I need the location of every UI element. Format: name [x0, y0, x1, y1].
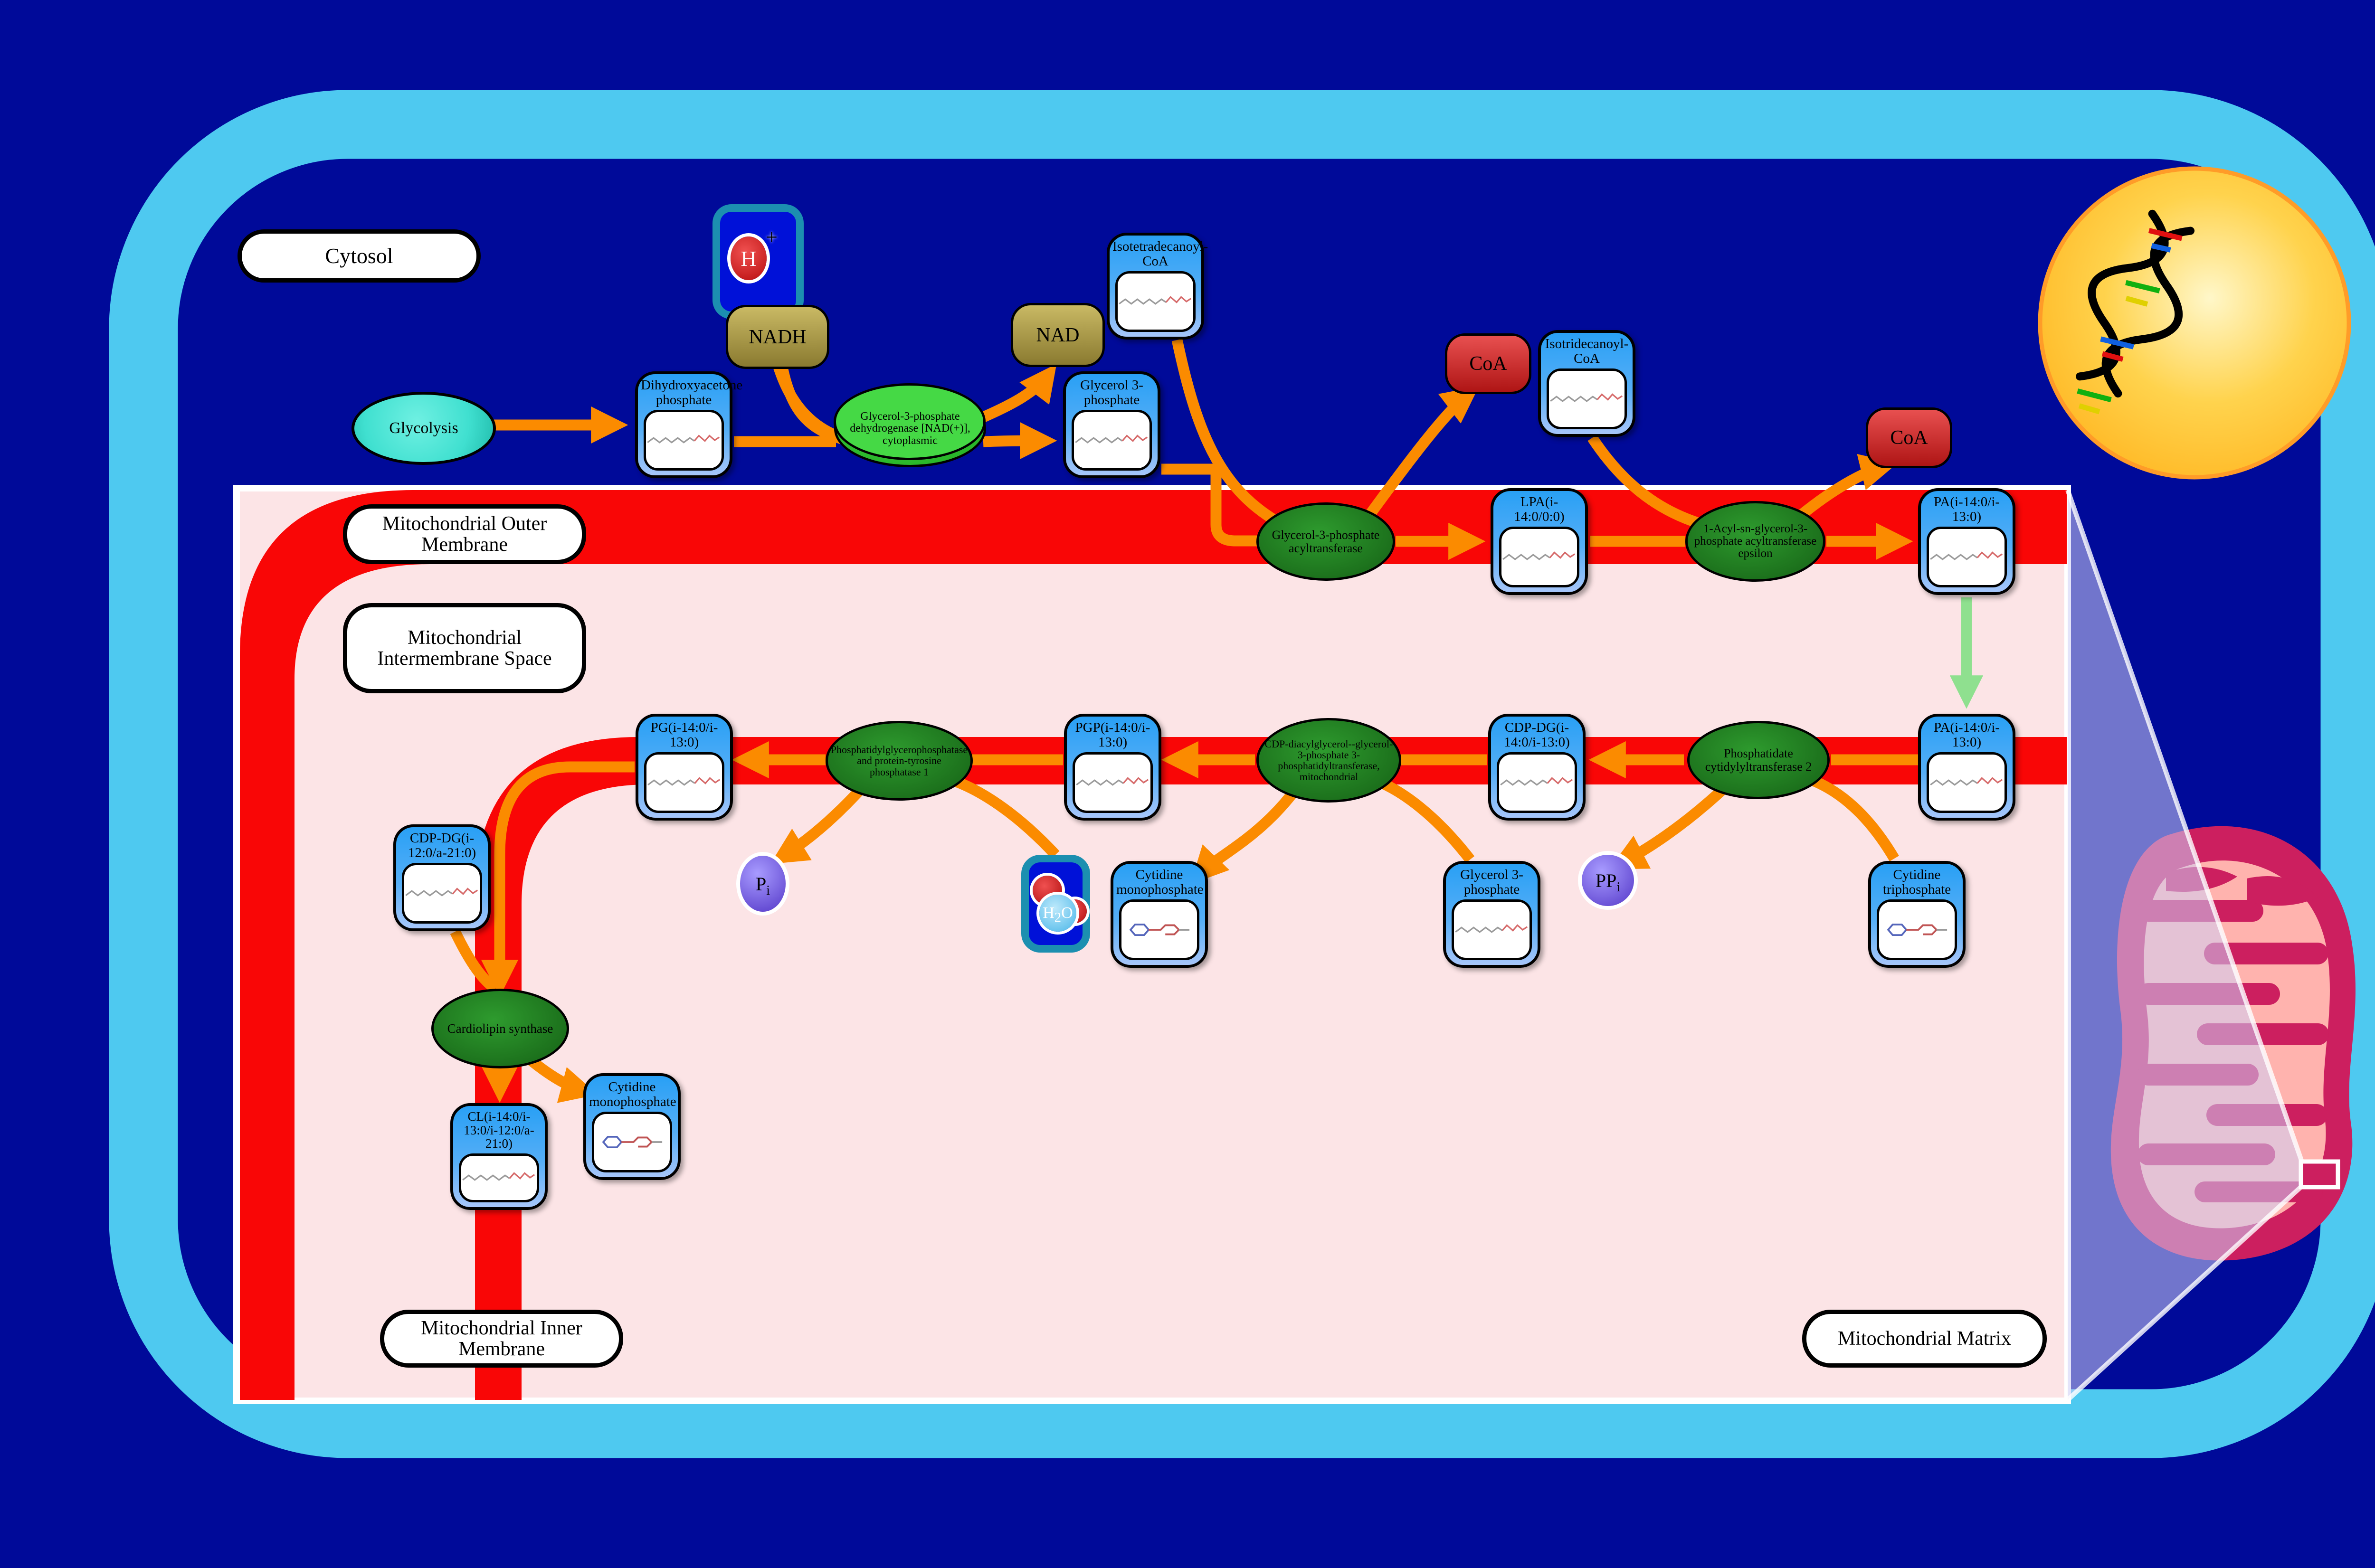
molecule-structure-icon	[1497, 752, 1577, 813]
metabolite-node-cmp-bottom[interactable]: Cytidine monophosphate	[583, 1073, 681, 1180]
compartment-label-inner-membrane: Mitochondrial Inner Membrane	[380, 1310, 623, 1368]
pathway-diagram-canvas: Cytosol Mitochondrial Outer Membrane Mit…	[0, 0, 2375, 1568]
metabolite-node-pa-outer[interactable]: PA(i-14:0/i-13:0)	[1918, 488, 2015, 595]
nucleus-illustration	[2040, 169, 2349, 477]
metabolite-node-cdp-dg[interactable]: CDP-DG(i-14:0/i-13:0)	[1488, 714, 1586, 821]
molecule-structure-icon	[1115, 271, 1196, 332]
compartment-label-outer-membrane: Mitochondrial Outer Membrane	[343, 504, 586, 564]
molecule-structure-icon	[1072, 410, 1152, 471]
h-plus-entity[interactable]: H +	[712, 204, 804, 319]
molecule-structure-icon	[1452, 899, 1532, 960]
molecule-structure-icon	[1499, 527, 1579, 587]
coa-entity-1[interactable]: CoA	[1445, 333, 1531, 394]
metabolite-node-dhap[interactable]: Dihydroxyacetone phosphate	[635, 371, 732, 478]
metabolite-node-isotridecanoyl-coa[interactable]: Isotridecanoyl-CoA	[1538, 330, 1635, 437]
molecule-structure-icon	[1877, 899, 1957, 960]
molecule-structure-icon	[402, 863, 482, 924]
molecule-structure-icon	[459, 1153, 539, 1202]
coa-entity-2[interactable]: CoA	[1866, 407, 1952, 468]
enzyme-node-ptpmt1[interactable]: Phosphatidylglycerophosphatase and prote…	[826, 721, 973, 801]
metabolite-node-cmp-mid[interactable]: Cytidine monophosphate	[1111, 861, 1208, 968]
metabolite-node-cardiolipin[interactable]: CL(i-14:0/i-13:0/i-12:0/a-21:0)	[450, 1103, 548, 1210]
compartment-label-matrix: Mitochondrial Matrix	[1802, 1310, 2047, 1368]
metabolite-node-isotetradecanoyl-coa[interactable]: Isotetradecanoyl-CoA	[1107, 233, 1204, 340]
metabolite-node-ctp[interactable]: Cytidine triphosphate	[1868, 861, 1966, 968]
enzyme-node-pgs1[interactable]: CDP-diacylglycerol--glycerol-3-phosphate…	[1256, 718, 1401, 803]
water-molecule-icon: H2O	[1039, 895, 1076, 932]
molecule-structure-icon	[1119, 899, 1199, 960]
metabolite-node-pg[interactable]: PG(i-14:0/i-13:0)	[636, 714, 733, 821]
arrow-gpd-to-g3p	[983, 441, 1044, 442]
metabolite-node-g3p-matrix[interactable]: Glycerol 3-phosphate	[1443, 861, 1540, 968]
nadh-entity[interactable]: NADH	[726, 305, 829, 369]
molecule-structure-icon	[644, 752, 724, 813]
compartment-label-intermembrane-space: Mitochondrial Intermembrane Space	[343, 603, 586, 693]
pathway-node-glycolysis[interactable]: Glycolysis	[351, 392, 496, 465]
zoom-source-rect	[2301, 1162, 2338, 1187]
enzyme-node-cardiolipin-synthase[interactable]: Cardiolipin synthase	[431, 989, 569, 1068]
enzyme-node-gpd[interactable]: Glycerol-3-phosphate dehydrogenase [NAD(…	[834, 390, 986, 467]
metabolite-node-pa-inner[interactable]: PA(i-14:0/i-13:0)	[1918, 714, 2015, 821]
nad-entity[interactable]: NAD	[1011, 303, 1105, 367]
h2o-entity[interactable]: H2O	[1021, 855, 1090, 953]
metabolite-node-g3p[interactable]: Glycerol 3-phosphate	[1063, 371, 1160, 478]
compartment-label-cytosol: Cytosol	[237, 229, 481, 283]
molecule-structure-icon	[644, 410, 724, 471]
enzyme-node-agpat-epsilon[interactable]: 1-Acyl-sn-glycerol-3-phosphate acyltrans…	[1685, 501, 1825, 582]
pi-entity[interactable]: Pi	[740, 856, 786, 912]
metabolite-node-pgp[interactable]: PGP(i-14:0/i-13:0)	[1064, 714, 1161, 821]
molecule-structure-icon	[592, 1112, 672, 1172]
enzyme-node-gpat[interactable]: Glycerol-3-phosphate acyltransferase	[1256, 502, 1395, 581]
molecule-structure-icon	[1547, 368, 1627, 429]
ppi-entity[interactable]: PPi	[1582, 855, 1634, 906]
metabolite-node-lpa[interactable]: LPA(i-14:0/0:0)	[1491, 488, 1588, 595]
molecule-structure-icon	[1927, 527, 2007, 587]
metabolite-node-cdp-dg-2[interactable]: CDP-DG(i-12:0/a-21:0)	[393, 824, 491, 931]
arrow-to-nad	[976, 374, 1049, 420]
molecule-structure-icon	[1927, 752, 2007, 813]
proton-icon: H	[731, 236, 767, 280]
enzyme-node-pcyt2[interactable]: Phosphatidate cytidylyltransferase 2	[1687, 721, 1830, 799]
molecule-structure-icon	[1073, 752, 1153, 813]
